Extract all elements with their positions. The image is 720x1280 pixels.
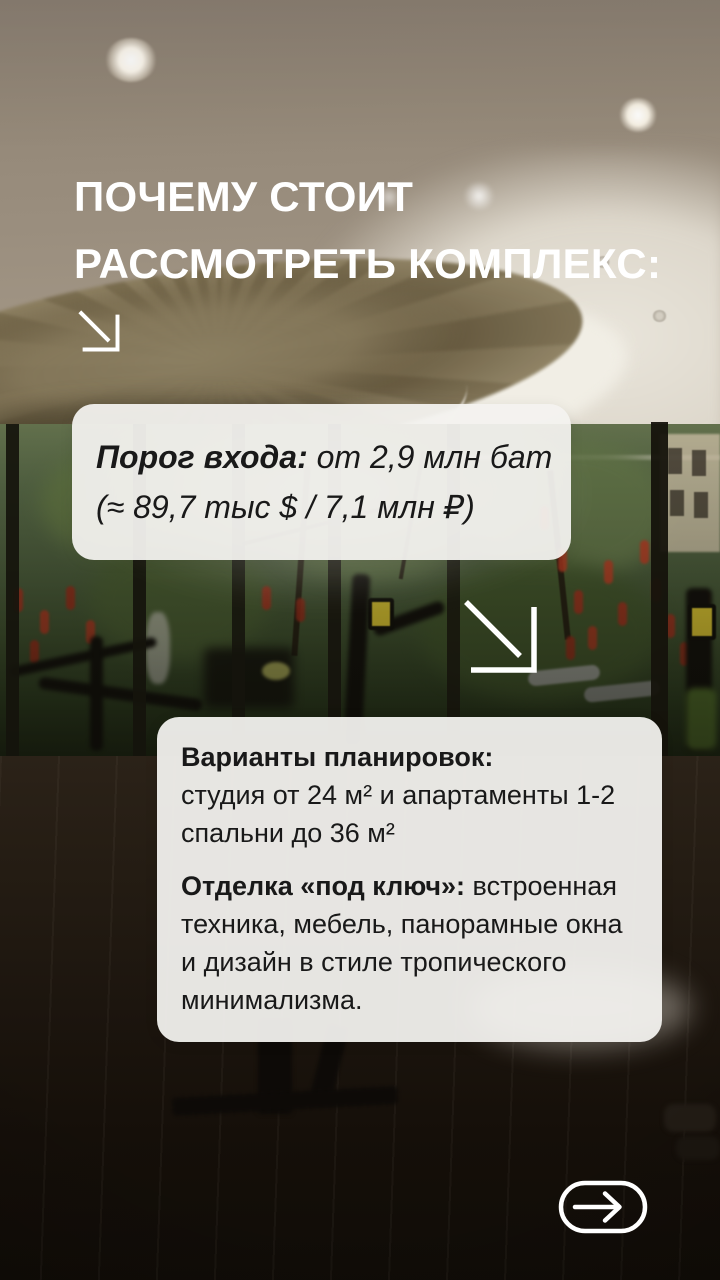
story-slide: ПОЧЕМУ СТОИТ РАССМОТРЕТЬ КОМПЛЕКС: Порог… [0, 0, 720, 1280]
layouts-label: Варианты планировок: [181, 738, 638, 776]
finishing-line-3: и дизайн в стиле тропического [181, 943, 638, 981]
finishing-line-2: техника, мебель, панорамные окна [181, 905, 638, 943]
price-line-2: (≈ 89,7 тыс $ / 7,1 млн ₽) [96, 482, 547, 532]
finishing-line-1: Отделка «под ключ»: встроенная [181, 867, 638, 905]
finishing-paragraph: Отделка «под ключ»: встроенная техника, … [181, 867, 638, 1019]
price-card: Порог входа: от 2,9 млн бат (≈ 89,7 тыс … [72, 404, 571, 560]
layouts-paragraph: Варианты планировок: студия от 24 м² и а… [181, 738, 638, 852]
arrow-down-right-icon [462, 597, 542, 679]
page-title-line-1: ПОЧЕМУ СТОИТ [74, 163, 661, 230]
layouts-line-2: спальни до 36 м² [181, 814, 638, 852]
price-value: от 2,9 млн бат [317, 439, 553, 475]
layouts-line-1: студия от 24 м² и апартаменты 1-2 [181, 776, 638, 814]
finishing-line-4: минимализма. [181, 981, 638, 1019]
price-text: Порог входа: от 2,9 млн бат (≈ 89,7 тыс … [96, 432, 547, 532]
page-title-line-2: РАССМОТРЕТЬ КОМПЛЕКС: [74, 230, 661, 297]
finishing-line-1-rest: встроенная [473, 871, 617, 901]
finishing-label: Отделка «под ключ»: [181, 871, 465, 901]
details-card: Варианты планировок: студия от 24 м² и а… [157, 717, 662, 1042]
arrow-down-right-icon [77, 309, 122, 354]
price-label: Порог входа: [96, 439, 308, 475]
price-line-1: Порог входа: от 2,9 млн бат [96, 432, 547, 482]
page-title: ПОЧЕМУ СТОИТ РАССМОТРЕТЬ КОМПЛЕКС: [74, 163, 661, 297]
next-slide-button[interactable] [558, 1180, 648, 1234]
arrow-right-icon [558, 1180, 648, 1234]
